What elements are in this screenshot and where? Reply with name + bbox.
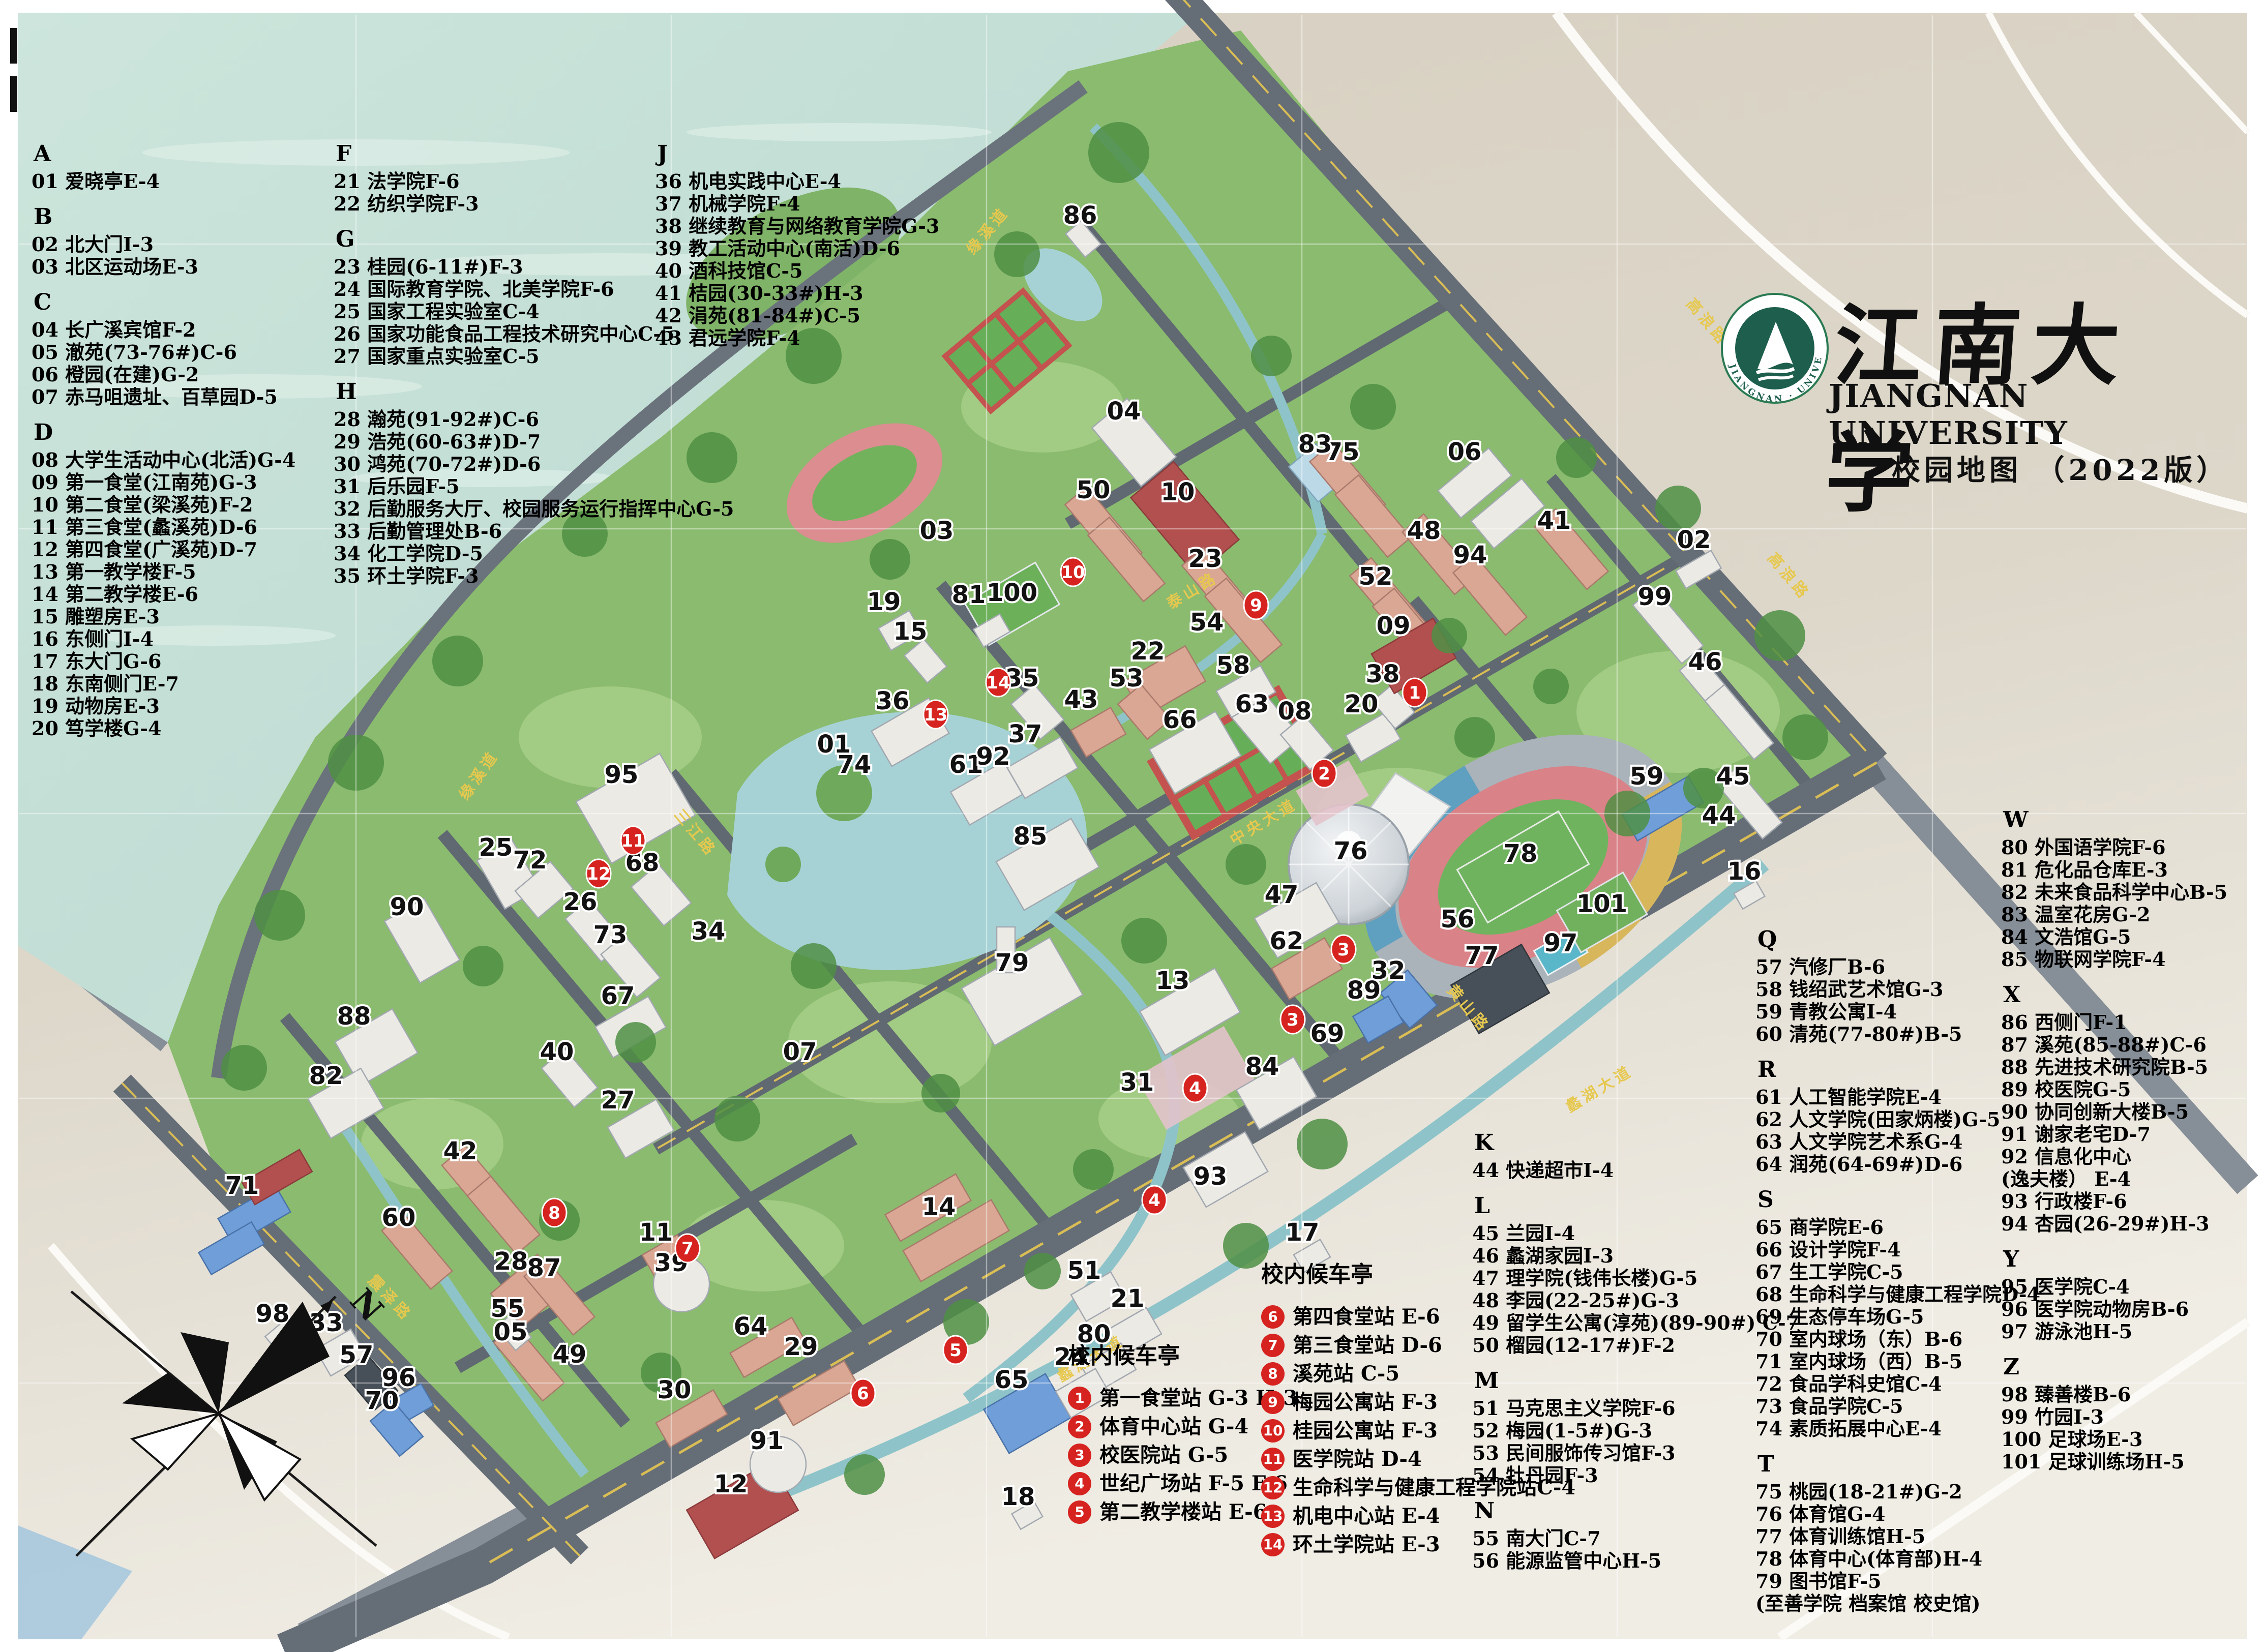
legend-item: 100 足球场E-3	[2001, 1428, 2227, 1451]
tree-cluster	[1782, 714, 1828, 760]
building-number-label: 06	[1448, 438, 1482, 466]
building-number-label: 87	[527, 1254, 561, 1282]
legend-item: 98 臻善楼B-6	[2001, 1384, 2227, 1406]
legend-item: 44 快递超市I-4	[1472, 1159, 1799, 1182]
legend-item: 18 东南侧门E-7	[32, 673, 295, 695]
building-number-label: 12	[714, 1470, 748, 1498]
legend-section-letter: Z	[2003, 1356, 2227, 1378]
lake-islet	[765, 847, 801, 882]
building-number-label: 100	[987, 579, 1037, 607]
tree-cluster	[1533, 669, 1569, 704]
building-number-label: 90	[390, 893, 424, 921]
legend-item: 89 校医院G-5	[2001, 1078, 2227, 1101]
bus-stop-name: 校医院站 G-5	[1099, 1441, 1228, 1469]
building-number-label: 76	[1334, 837, 1368, 865]
page-mark	[10, 76, 17, 112]
legend-item: 65 商学院E-6	[1755, 1216, 2040, 1239]
tree-cluster	[1454, 717, 1495, 758]
legend-item: 19 动物房E-3	[32, 695, 295, 717]
building-number-label: 79	[995, 949, 1029, 977]
legend-item: 95 医学院C-4	[2001, 1276, 2227, 1298]
legend-item: 84 文浩馆G-5	[2001, 926, 2227, 948]
building-number-label: 50	[1077, 476, 1111, 504]
building-number-label: 27	[601, 1086, 635, 1115]
bus-stop-marker-number: 6	[857, 1384, 869, 1404]
tree-cluster	[615, 1022, 656, 1063]
bus-stop-marker-number: 7	[681, 1239, 694, 1259]
legend-item: 92 信息化中心 (逸夫楼） E-4	[2001, 1146, 2227, 1190]
bus-stop-number-badge: 2	[1068, 1415, 1091, 1438]
legend-item: 68 生命科学与健康工程学院D-4	[1755, 1283, 2040, 1306]
building-number-label: 26	[563, 888, 598, 916]
bus-stop-marker-number: 4	[1189, 1078, 1201, 1099]
legend-item: 58 钱绍武艺术馆G-3	[1755, 978, 2040, 1001]
legend-column-abcd: A01 爱晓亭E-4B02 北大门I-303 北区运动场E-3C04 长广溪宾馆…	[32, 130, 295, 740]
building-number-label: 34	[692, 917, 726, 946]
building-number-label: 11	[639, 1218, 673, 1247]
building-number-label: 64	[734, 1312, 768, 1341]
building-number-label: 57	[340, 1341, 374, 1369]
tree-cluster	[1073, 1149, 1114, 1190]
legend-item: 12 第四食堂(广溪苑)D-7	[32, 538, 295, 561]
legend-item: 40 酒科技馆C-5	[655, 260, 939, 282]
building-number-label: 14	[922, 1193, 956, 1221]
legend-section-letter: Y	[2003, 1248, 2227, 1271]
legend-item: 66 设计学院F-4	[1755, 1239, 2040, 1261]
tree-cluster	[432, 636, 483, 686]
building-number-label: 25	[479, 833, 513, 862]
bus-stop-marker-number: 3	[1337, 940, 1350, 960]
legend-section-letter: A	[34, 143, 295, 165]
building-number-label: 51	[1067, 1256, 1101, 1285]
building-number-label: 63	[1235, 690, 1269, 718]
legend-item: 45 兰园I-4	[1472, 1222, 1799, 1245]
building-number-label: 29	[784, 1333, 818, 1361]
legend-column-qrst: Q57 汽修厂B-658 钱绍武艺术馆G-359 青教公寓I-460 清苑(77…	[1755, 915, 2040, 1615]
bus-stop-name: 机电中心站 E-4	[1293, 1502, 1440, 1530]
bus-stop-number-badge: 3	[1068, 1444, 1091, 1467]
tree-cluster	[1226, 844, 1266, 885]
legend-item: 64 润苑(64-69#)D-6	[1755, 1153, 2040, 1176]
building-number-label: 17	[1286, 1218, 1320, 1247]
bus-stop-name: 体育中心站 G-4	[1099, 1413, 1248, 1441]
legend-item: 80 外国语学院F-6	[2001, 836, 2227, 859]
legend-item: 69 生态停车场G-5	[1755, 1306, 2040, 1328]
legend-section-letter: T	[1757, 1453, 2040, 1476]
bus-stop-number-badge: 1	[1068, 1387, 1091, 1410]
building-number-label: 48	[1407, 517, 1441, 545]
bus-stop-marker-number: 14	[986, 673, 1010, 693]
legend-item: 07 赤马咀遗址、百草园D-5	[32, 386, 295, 408]
legend-item: 13 第一教学楼F-5	[32, 561, 295, 583]
building-number-label: 22	[1131, 637, 1165, 666]
legend-item: 41 桔园(30-33#)H-3	[655, 282, 939, 305]
legend-item: 29 浩苑(60-63#)D-7	[334, 431, 734, 453]
bus-stop-legend-item: 7第三食堂站 D-6	[1261, 1331, 1575, 1360]
building-number-label: 19	[867, 588, 901, 616]
building-number-label: 85	[1014, 822, 1048, 851]
legend-column-j: J36 机电实践中心E-437 机械学院F-438 继续教育与网络教育学院G-3…	[655, 130, 939, 349]
bus-stop-legend-title: 校内候车亭	[1261, 1256, 1575, 1288]
legend-item: 37 机械学院F-4	[655, 193, 939, 215]
legend-section-letter: Q	[1757, 928, 2040, 951]
legend-item: 88 先进技术研究院B-5	[2001, 1056, 2227, 1078]
building-number-label: 16	[1727, 857, 1762, 886]
building-number-label: 65	[995, 1366, 1029, 1394]
bus-stop-marker-number: 2	[1318, 764, 1330, 784]
legend-item: 32 后勤服务大厅、校园服务运行指挥中心G-5	[334, 498, 734, 520]
bus-stop-name: 生命科学与健康工程学院站C-4	[1293, 1474, 1575, 1502]
legend-item: 04 长广溪宾馆F-2	[32, 319, 295, 341]
bus-stop-marker-number: 10	[1061, 562, 1085, 583]
building-number-label: 31	[1120, 1068, 1154, 1097]
legend-item: 91 谢家老宅D-7	[2001, 1123, 2227, 1146]
tree-cluster	[1088, 122, 1149, 183]
building-number-label: 09	[1377, 612, 1411, 640]
legend-item: 77 体育训练馆H-5	[1755, 1525, 2040, 1548]
legend-section-letter: J	[657, 143, 939, 165]
bus-stop-legend-item: 9梅园公寓站 F-3	[1261, 1388, 1575, 1417]
page-mark	[10, 28, 17, 64]
tree-cluster	[221, 1045, 267, 1091]
building-number-label: 46	[1688, 648, 1722, 676]
building-number-label: 38	[1366, 660, 1400, 688]
bus-stop-legend-item: 6第四食堂站 E-6	[1261, 1303, 1575, 1331]
legend-section-letter: B	[34, 206, 295, 228]
building-number-label: 54	[1190, 608, 1224, 637]
legend-item: 90 协同创新大楼B-5	[2001, 1101, 2227, 1123]
legend-item: 61 人工智能学院E-4	[1755, 1086, 2040, 1108]
building-number-label: 91	[750, 1427, 784, 1455]
building-number-label: 18	[1001, 1483, 1035, 1511]
bus-stop-number-badge: 9	[1261, 1391, 1285, 1414]
legend-item: 70 室内球场（东）B-6	[1755, 1328, 2040, 1350]
legend-section-letter: L	[1474, 1195, 1799, 1217]
building-number-label: 84	[1245, 1053, 1279, 1081]
legend-item: 30 鸿苑(70-72#)D-6	[334, 453, 734, 475]
building-number-label: 95	[605, 761, 639, 789]
legend-item: 34 化工学院D-5	[334, 543, 734, 565]
tree-cluster	[870, 539, 910, 580]
legend-item: 15 雕塑房E-3	[32, 606, 295, 628]
bus-stop-name: 溪苑站 C-5	[1293, 1360, 1399, 1388]
building-number-label: 98	[256, 1300, 290, 1328]
bus-stop-legend-item: 14环土学院站 E-3	[1261, 1530, 1575, 1559]
bus-stop-legend-item: 10桂园公寓站 F-3	[1261, 1417, 1575, 1445]
legend-item: 36 机电实践中心E-4	[655, 170, 939, 193]
tree-cluster	[1297, 1119, 1348, 1169]
bus-stop-marker-number: 11	[621, 831, 645, 851]
building-number-label: 10	[1161, 478, 1195, 506]
building-number-label: 94	[1453, 541, 1487, 569]
bus-stop-marker-number: 1	[1409, 683, 1421, 703]
legend-item: 87 溪苑(85-88#)C-6	[2001, 1034, 2227, 1056]
legend-item: 42 涓苑(81-84#)C-5	[655, 305, 939, 327]
bus-stop-name: 医学院站 D-4	[1293, 1445, 1422, 1474]
building-number-label: 92	[976, 742, 1010, 771]
building-number-label: 77	[1465, 942, 1499, 970]
building-number-label: 30	[658, 1376, 692, 1404]
building-number-label: 04	[1107, 397, 1141, 426]
tree-cluster	[994, 231, 1040, 277]
legend-item: 14 第二教学楼E-6	[32, 583, 295, 606]
building-number-label: 93	[1194, 1162, 1228, 1191]
tree-cluster	[1350, 384, 1396, 430]
building-number-label: 52	[1359, 562, 1393, 591]
building-number-label: 56	[1441, 905, 1475, 934]
legend-item: 63 人文学院艺术系G-4	[1755, 1131, 2040, 1153]
legend-column-wxyz: W80 外国语学院F-681 危化品仓库E-382 未来食品科学中心B-583 …	[2001, 796, 2227, 1473]
building-number-label: 78	[1504, 839, 1538, 868]
building-number-label: 69	[1310, 1019, 1345, 1048]
building-number-label: 42	[443, 1137, 478, 1165]
bus-stop-number-badge: 4	[1068, 1472, 1091, 1495]
university-name-en: JIANGNAN UNIVERSITY	[1829, 377, 2185, 452]
tree-cluster	[1655, 486, 1701, 531]
legend-section-letter: W	[2003, 809, 2227, 831]
legend-item: 02 北大门I-3	[32, 233, 295, 256]
legend-item: 06 橙园(在建)G-2	[32, 364, 295, 386]
legend-item: 01 爱晓亭E-4	[32, 170, 295, 193]
building-number-label: 37	[1008, 720, 1042, 748]
legend-item: 39 教工活动中心(南活)D-6	[655, 237, 939, 260]
bus-stop-name: 环土学院站 E-3	[1293, 1530, 1440, 1559]
building-number-label: 86	[1063, 201, 1097, 230]
legend-item: 62 人文学院(田家炳楼)G-5	[1755, 1108, 2040, 1131]
legend-item: 60 清苑(77-80#)B-5	[1755, 1023, 2040, 1045]
building-number-label: 62	[1270, 927, 1304, 955]
building-number-label: 08	[1278, 697, 1312, 726]
bus-stop-marker-number: 13	[923, 705, 947, 725]
building-number-label: 82	[309, 1062, 343, 1090]
legend-item: 86 西侧门F-1	[2001, 1011, 2227, 1034]
legend-item: 94 杏园(26-29#)H-3	[2001, 1213, 2227, 1235]
legend-item: 57 汽修厂B-6	[1755, 956, 2040, 978]
building-number-label: 53	[1110, 664, 1144, 693]
building-number-label: 13	[1156, 967, 1190, 995]
legend-item: 79 图书馆F-5 (至善学院 档案馆 校史馆)	[1755, 1570, 2040, 1615]
bus-stop-legend-2: 校内候车亭6第四食堂站 E-67第三食堂站 D-68溪苑站 C-59梅园公寓站 …	[1261, 1256, 1575, 1559]
bus-stop-name: 第三食堂站 D-6	[1293, 1331, 1442, 1360]
legend-item: 75 桃园(18-21#)G-2	[1755, 1481, 2040, 1503]
map-title-subtitle: 校园地图 （2022版）	[1892, 447, 2229, 489]
legend-item: 33 后勤管理处B-6	[334, 520, 734, 543]
tree-cluster	[254, 890, 305, 941]
legend-item: 38 继续教育与网络教育学院G-3	[655, 215, 939, 237]
building-number-label: 47	[1265, 881, 1299, 909]
legend-item: 28 瀚苑(91-92#)C-6	[334, 408, 734, 431]
legend-section-letter: S	[1757, 1189, 2040, 1211]
legend-item: 73 食品学院C-5	[1755, 1395, 2040, 1418]
legend-item: 93 行政楼F-6	[2001, 1190, 2227, 1213]
building-number-label: 49	[553, 1340, 587, 1369]
building-number-label: 55	[491, 1295, 525, 1323]
building-number-label: 23	[1188, 545, 1223, 573]
building-number-label: 20	[1345, 690, 1379, 718]
tree-cluster	[1556, 437, 1597, 478]
building-number-label: 71	[225, 1172, 259, 1200]
legend-item: 99 竹园I-3	[2001, 1406, 2227, 1428]
legend-item: 97 游泳池H-5	[2001, 1320, 2227, 1343]
tree-cluster	[921, 1074, 960, 1113]
building-number-label: 73	[593, 921, 628, 949]
legend-item: 08 大学生活动中心(北活)G-4	[32, 449, 295, 471]
legend-item: 67 生工学院C-5	[1755, 1261, 2040, 1283]
bus-stop-number-badge: 12	[1261, 1476, 1285, 1499]
building-number-label: 41	[1537, 506, 1571, 535]
building-number-label: 97	[1544, 929, 1578, 957]
legend-item: 17 东大门G-6	[32, 650, 295, 673]
bus-stop-name: 梅园公寓站 F-3	[1293, 1388, 1438, 1417]
tree-cluster	[714, 1096, 760, 1142]
building-number-label: 07	[783, 1038, 817, 1066]
bus-stop-name: 世纪广场站 F-5 F-6	[1099, 1469, 1288, 1498]
bus-stop-marker-number: 4	[1148, 1190, 1160, 1211]
legend-item: 16 东侧门I-4	[32, 628, 295, 650]
tree-cluster	[1121, 918, 1167, 964]
legend-item: 10 第二食堂(梁溪苑)F-2	[32, 494, 295, 516]
legend-item: 35 环土学院F-3	[334, 565, 734, 587]
legend-section-letter: D	[34, 422, 295, 444]
tree-cluster	[1432, 618, 1467, 653]
bus-stop-legend-item: 12生命科学与健康工程学院站C-4	[1261, 1474, 1575, 1502]
bus-stop-number-badge: 6	[1261, 1305, 1285, 1329]
building-number-label: 83	[1298, 430, 1332, 459]
legend-section-letter: X	[2003, 984, 2227, 1006]
tree-cluster	[1251, 336, 1292, 376]
legend-item: 78 体育中心(体育部)H-4	[1755, 1548, 2040, 1570]
legend-section-letter: R	[1757, 1059, 2040, 1081]
legend-item: 43 君远学院F-4	[655, 327, 939, 349]
tree-cluster	[791, 943, 837, 989]
legend-item: 76 体育馆G-4	[1755, 1503, 2040, 1525]
legend-item: 96 医学院动物房B-6	[2001, 1298, 2227, 1320]
legend-item: 31 后乐园F-5	[334, 475, 734, 498]
legend-item: 101 足球训练场H-5	[2001, 1451, 2227, 1473]
bus-stop-number-badge: 5	[1068, 1500, 1091, 1524]
legend-item: 03 北区运动场E-3	[32, 256, 295, 278]
campus-map-page: { "title":{ "logo_name":"jiangnan-univer…	[0, 0, 2265, 1652]
legend-item: 82 未来食品科学中心B-5	[2001, 881, 2227, 904]
legend-item: 71 室内球场（西）B-5	[1755, 1350, 2040, 1373]
building-number-label: 45	[1716, 762, 1750, 791]
bus-stop-marker-number: 5	[949, 1340, 962, 1361]
bus-stop-number-badge: 14	[1261, 1533, 1285, 1556]
legend-item: 81 危化品仓库E-3	[2001, 859, 2227, 881]
building-number-label: 58	[1216, 651, 1250, 680]
building-number-label: 43	[1064, 685, 1098, 714]
building-number-label: 89	[1347, 976, 1381, 1005]
bus-stop-name: 第二教学楼站 E-6	[1099, 1498, 1267, 1526]
bus-stop-name: 第四食堂站 E-6	[1293, 1303, 1440, 1331]
legend-item: 20 笃学楼G-4	[32, 717, 295, 740]
building-number-label: 72	[513, 846, 547, 875]
building-number-label: 60	[382, 1204, 416, 1232]
tree-cluster	[1024, 1253, 1061, 1289]
building-number-label: 88	[337, 1002, 371, 1031]
legend-section-letter: K	[1474, 1132, 1799, 1154]
bus-stop-number-badge: 11	[1261, 1448, 1285, 1471]
legend-item: 72 食品学科史馆C-4	[1755, 1373, 2040, 1395]
building-number-label: 59	[1630, 762, 1664, 791]
bus-stop-number-badge: 7	[1261, 1334, 1285, 1357]
building-number-label: 44	[1702, 801, 1736, 830]
building-number-label: 81	[952, 581, 986, 609]
bus-stop-number-badge: 13	[1261, 1505, 1285, 1528]
building-number-label: 74	[838, 750, 872, 779]
legend-section-letter: C	[34, 291, 295, 314]
bus-stop-marker-number: 8	[548, 1203, 560, 1223]
legend-item: 05 澈苑(73-76#)C-6	[32, 341, 295, 364]
university-seal: JIANGNAN · UNIVERSITY ·	[1722, 294, 1828, 405]
bus-stop-legend-item: 8溪苑站 C-5	[1261, 1360, 1575, 1388]
bus-stop-marker-number: 12	[586, 864, 610, 884]
bus-stop-marker-number: 3	[1287, 1010, 1299, 1030]
bus-stop-legend-item: 13机电中心站 E-4	[1261, 1502, 1575, 1530]
building-number-label: 28	[494, 1247, 528, 1276]
building-number-label: 36	[876, 687, 910, 715]
bus-stop-number-badge: 8	[1261, 1362, 1285, 1386]
building-number-label: 67	[601, 982, 635, 1010]
building-number-label: 40	[540, 1038, 574, 1066]
bus-stop-marker-number: 9	[1250, 595, 1262, 616]
building-number-label: 21	[1111, 1284, 1145, 1313]
building-number-label: 15	[893, 617, 928, 646]
legend-section-letter: H	[336, 381, 734, 403]
building-number-label: 02	[1677, 526, 1711, 554]
legend-item: 59 青教公寓I-4	[1755, 1001, 2040, 1023]
bus-stop-name: 桂园公寓站 F-3	[1293, 1417, 1438, 1445]
legend-item: 11 第三食堂(蠡溪苑)D-6	[32, 516, 295, 538]
legend-item: 74 素质拓展中心E-4	[1755, 1418, 2040, 1440]
legend-item: 83 温室花房G-2	[2001, 904, 2227, 926]
tree-cluster	[1754, 610, 1805, 661]
building-number-label: 66	[1163, 706, 1197, 734]
building-number-label: 96	[382, 1364, 416, 1392]
building-number-label: 99	[1638, 583, 1672, 611]
legend-item: 09 第一食堂(江南苑)G-3	[32, 471, 295, 494]
tree-cluster	[463, 946, 503, 986]
bus-stop-number-badge: 10	[1261, 1419, 1285, 1443]
bus-stop-legend-item: 11医学院站 D-4	[1261, 1445, 1575, 1474]
building-number-label: 03	[920, 517, 954, 545]
legend-item: 85 物联网学院F-4	[2001, 948, 2227, 971]
building-number-label: 101	[1576, 890, 1627, 918]
tree-cluster	[844, 1454, 885, 1495]
